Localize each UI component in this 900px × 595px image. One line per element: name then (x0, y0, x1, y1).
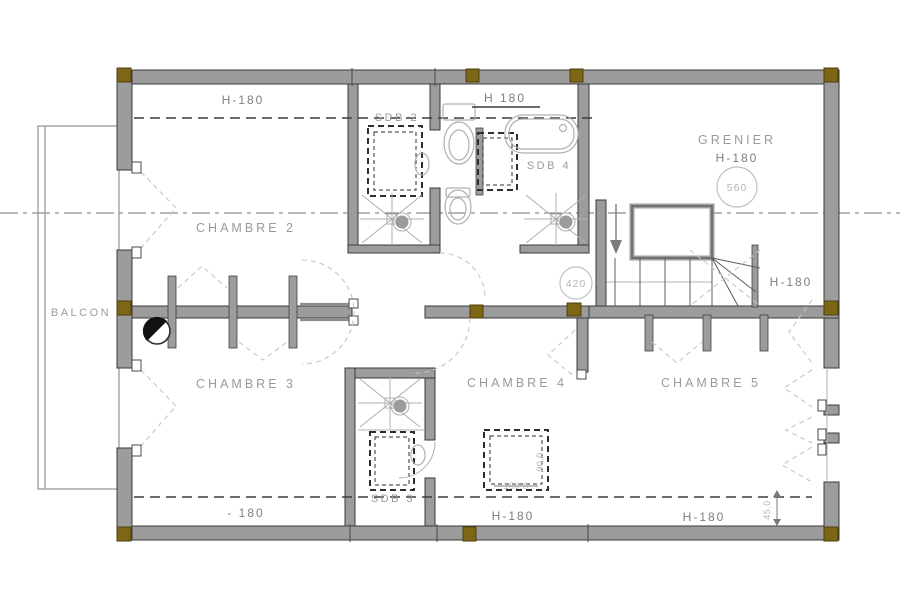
wall-sdb2-left (348, 84, 358, 250)
wall-stair-left (596, 200, 606, 306)
dim-h180-stair: H-180 (770, 275, 813, 289)
post-top-mid1 (466, 69, 479, 82)
basin-sdb3 (411, 445, 425, 465)
marker-grenier: 560 (727, 182, 748, 194)
velux-ch4-height-dim: 90.0 (535, 452, 545, 472)
dim-right-offset: 45.0 (762, 500, 772, 520)
room-grenier: GRENIER (698, 133, 776, 147)
post-spine2 (567, 303, 581, 316)
velux-sdb2 (368, 126, 422, 196)
floor-plan-drawing: 100.0 90.0 (0, 0, 900, 595)
post-bottom-right (824, 527, 838, 541)
wall-ticks (350, 68, 588, 542)
wall-wc-left-upper (430, 84, 440, 130)
dim-h180-bottom-left: - 180 (227, 506, 264, 520)
dim-h180-bottom-center: H-180 (492, 509, 535, 523)
section-marker-symbol (143, 317, 170, 344)
wall-wc-left-lower (430, 188, 440, 250)
wall-ch4-ch5 (577, 318, 588, 372)
wall-sdb3-right-upper (425, 378, 435, 440)
dim-h180-top-left: H-180 (222, 93, 265, 107)
post-spine1 (470, 305, 483, 318)
wall-left-upper (117, 70, 132, 170)
dim-h180-top-center: H 180 (484, 91, 526, 105)
right-offset-dimension: 45.0 (762, 490, 781, 526)
post-bottom-mid (463, 527, 476, 541)
room-chambre3: CHAMBRE 3 (196, 377, 296, 391)
fixtures (358, 104, 588, 465)
bathtub (505, 115, 578, 153)
staircase (606, 204, 760, 306)
floor-plan-sheet: 100.0 90.0 (0, 0, 900, 595)
marker-hall: 420 (566, 278, 587, 290)
post-right-mid (824, 301, 838, 315)
room-sdb2: SDB 2 (375, 112, 419, 124)
wall-bottom (117, 526, 839, 540)
room-balcon: BALCON (51, 307, 111, 319)
velux-sdb3 (370, 432, 414, 490)
post-left-mid (117, 301, 131, 315)
post-bottom-left (117, 527, 131, 541)
toilet (443, 104, 475, 164)
post-top-right (824, 68, 838, 82)
dim-h180-grenier: H-180 (716, 151, 759, 165)
wall-sdb3-top (345, 368, 435, 378)
wall-left-lower (117, 448, 132, 540)
dim-h180-bottom-right: H-180 (683, 510, 726, 524)
room-sdb4: SDB 4 (527, 160, 571, 172)
wall-sdb3-left (345, 368, 355, 526)
post-top-mid2 (570, 69, 583, 82)
room-sdb3: SDB 3 (371, 493, 415, 505)
room-chambre2: CHAMBRE 2 (196, 221, 296, 235)
wall-sdb4-bottom (520, 245, 589, 253)
wall-right-upper (824, 70, 839, 368)
wall-stair-right (752, 245, 758, 307)
wall-sdb3-right-lower (425, 478, 435, 526)
bidet (445, 188, 471, 224)
wall-sdb2-bottom (348, 245, 440, 253)
room-chambre4: CHAMBRE 4 (467, 376, 567, 390)
post-top-left (117, 68, 131, 82)
room-chambre5: CHAMBRE 5 (661, 376, 761, 390)
wall-grenier (578, 84, 589, 250)
velux-ch4-width-dim: 100.0 (503, 481, 528, 491)
